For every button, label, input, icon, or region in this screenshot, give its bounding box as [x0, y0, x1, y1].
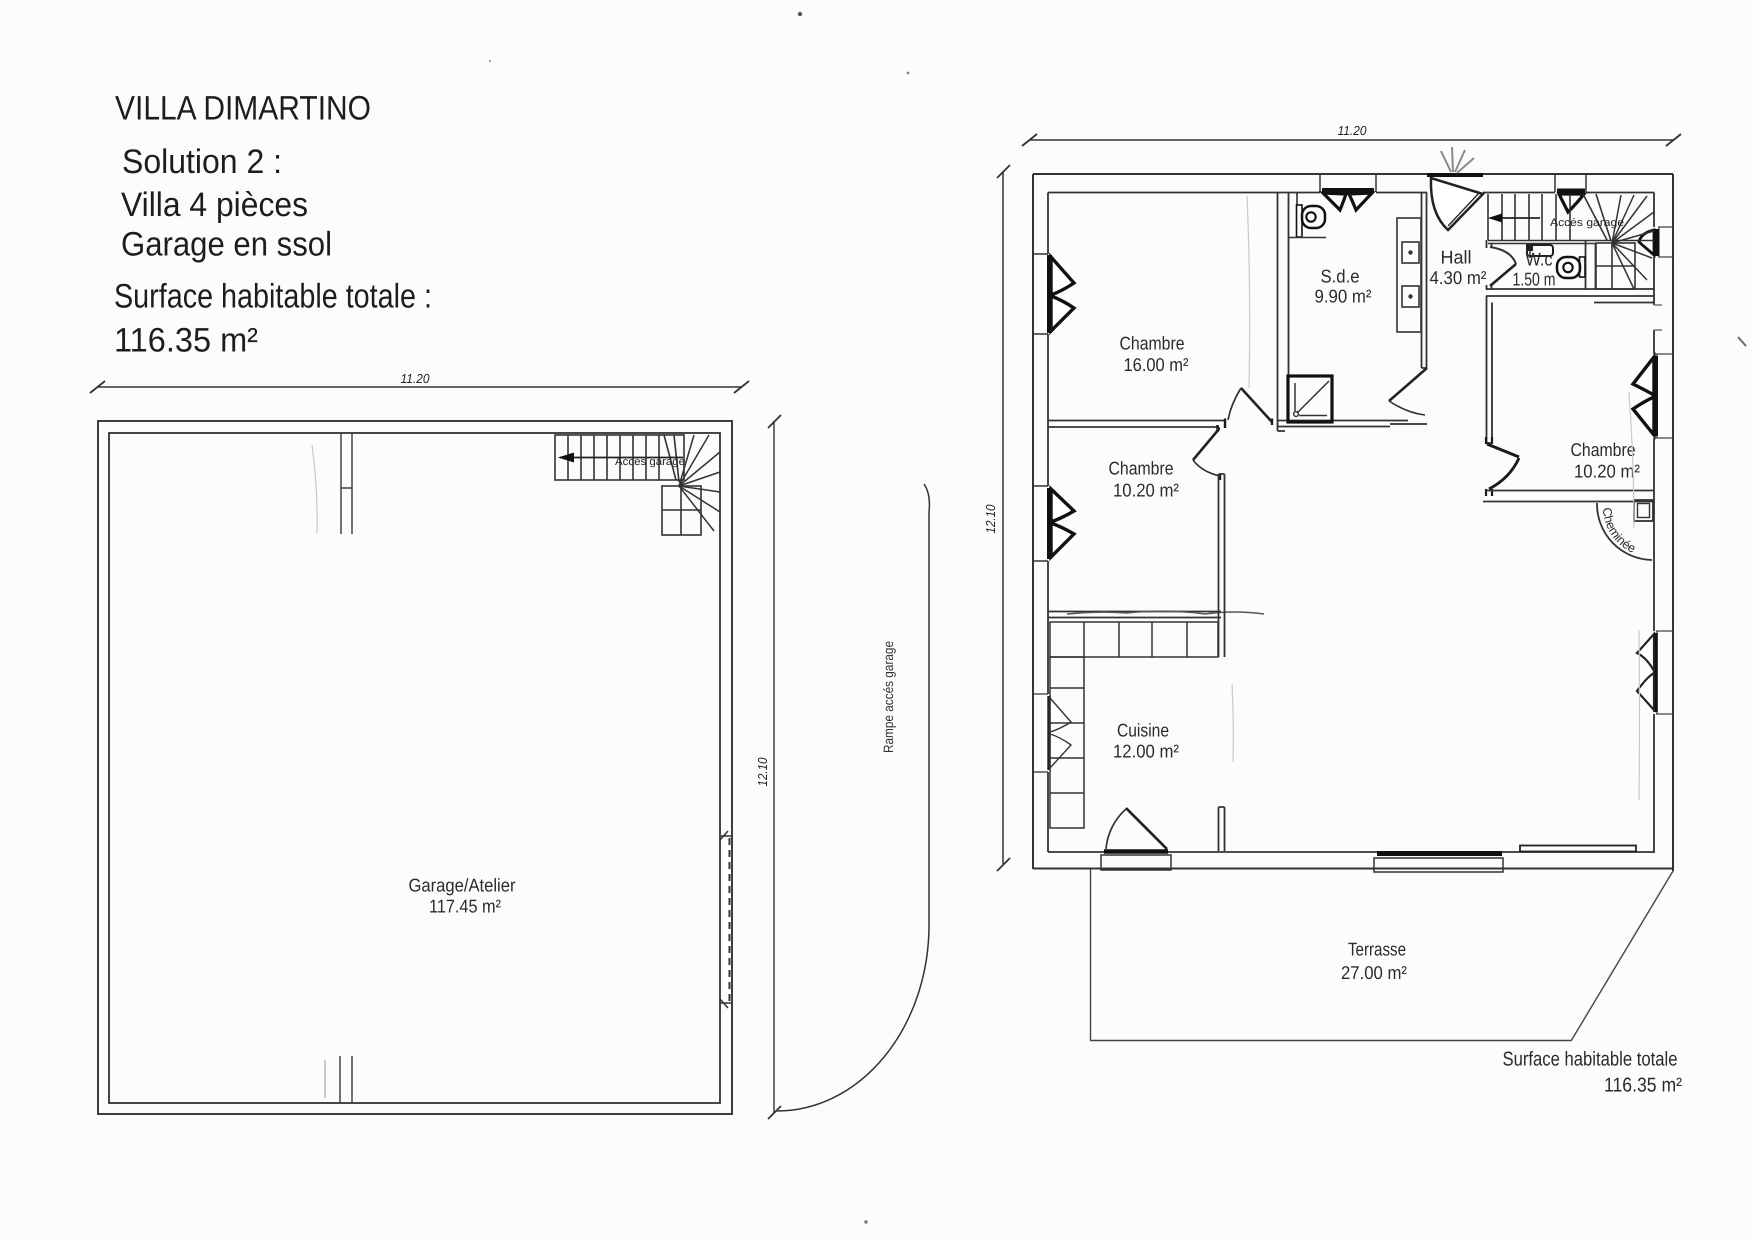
- svg-text:10.20 m²: 10.20 m²: [1113, 480, 1179, 501]
- svg-text:Accés garage: Accés garage: [1550, 217, 1624, 229]
- svg-text:16.00 m²: 16.00 m²: [1124, 354, 1189, 375]
- svg-text:11.20: 11.20: [401, 371, 431, 386]
- svg-text:12.00 m²: 12.00 m²: [1113, 741, 1179, 762]
- svg-text:S.d.e: S.d.e: [1321, 266, 1360, 287]
- svg-text:116.35 m²: 116.35 m²: [1604, 1075, 1682, 1097]
- svg-text:W.c: W.c: [1526, 249, 1553, 270]
- svg-text:Villa 4 pièces: Villa 4 pièces: [121, 186, 308, 224]
- svg-text:Surface habitable totale :: Surface habitable totale :: [114, 278, 432, 316]
- svg-text:VILLA DIMARTINO: VILLA DIMARTINO: [115, 90, 371, 128]
- svg-text:1.50 m: 1.50 m: [1513, 269, 1556, 290]
- svg-text:117.45 m²: 117.45 m²: [429, 896, 501, 917]
- svg-text:Rampe accés garage: Rampe accés garage: [881, 641, 896, 753]
- svg-text:Garage en ssol: Garage en ssol: [121, 226, 332, 264]
- svg-text:Chambre: Chambre: [1109, 458, 1174, 479]
- svg-text:Accés garage: Accés garage: [615, 456, 685, 468]
- svg-text:11.20: 11.20: [1338, 123, 1368, 138]
- svg-text:Terrasse: Terrasse: [1348, 939, 1406, 960]
- svg-text:Chambre: Chambre: [1120, 333, 1185, 354]
- svg-text:9.90 m²: 9.90 m²: [1315, 286, 1372, 307]
- svg-text:4.30 m²: 4.30 m²: [1430, 267, 1487, 288]
- svg-text:116.35 m²: 116.35 m²: [114, 322, 258, 360]
- svg-text:Cuisine: Cuisine: [1117, 720, 1169, 741]
- svg-text:Surface habitable totale: Surface habitable totale: [1503, 1049, 1678, 1071]
- svg-text:Garage/Atelier: Garage/Atelier: [409, 875, 516, 896]
- svg-text:27.00 m²: 27.00 m²: [1341, 962, 1407, 983]
- svg-text:Hall: Hall: [1441, 247, 1472, 268]
- svg-text:10.20 m²: 10.20 m²: [1574, 461, 1640, 482]
- svg-text:Chambre: Chambre: [1571, 439, 1636, 460]
- svg-text:12.10: 12.10: [755, 757, 770, 787]
- svg-text:12.10: 12.10: [983, 504, 998, 534]
- svg-text:Solution 2 :: Solution 2 :: [122, 143, 282, 181]
